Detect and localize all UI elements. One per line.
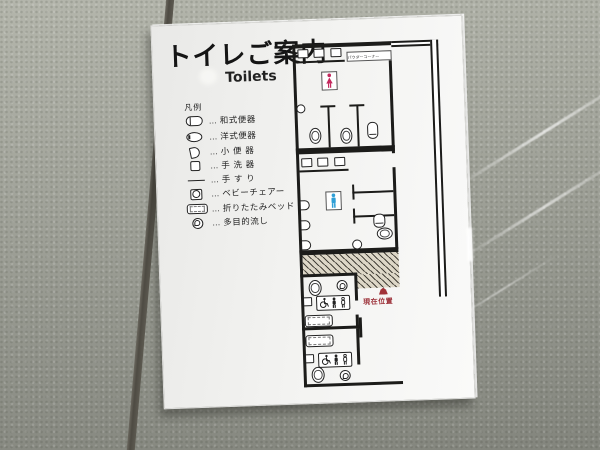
stall-partition: [327, 106, 330, 147]
folding-bed: [305, 314, 333, 327]
stall-partition: [349, 104, 364, 106]
western-toilet: [340, 128, 353, 144]
urinal: [300, 200, 310, 210]
hand-wash-basin: [317, 157, 328, 166]
stall-partition: [352, 190, 393, 193]
wall: [300, 272, 357, 277]
light-reflection: [455, 150, 600, 264]
wall: [392, 167, 398, 249]
urinal: [300, 220, 310, 230]
legend-item: … 手 洗 器: [184, 158, 255, 172]
legend-item: … 洋式便器: [183, 129, 256, 144]
hand-wash-basin-icon: [184, 161, 206, 172]
legend-label: 小 便 器: [221, 144, 255, 157]
legend-item: … ベビーチェアー: [185, 185, 285, 200]
hand-wash-basin: [334, 157, 345, 166]
hand-wash-basin: [297, 49, 308, 58]
western-toilet: [308, 280, 322, 296]
toilet-guide-sign: トイレご案内 Toilets 凡例 … 和式便器 … 洋式便器 … 小 便 器 …: [150, 15, 475, 410]
outer-wall: [430, 40, 447, 297]
wall: [392, 145, 395, 153]
hand-wash-basin: [303, 297, 312, 306]
light-reflection: [447, 69, 600, 193]
mens-room-symbol: [325, 191, 342, 211]
photo-of-toilet-guide-sign: トイレご案内 Toilets 凡例 … 和式便器 … 洋式便器 … 小 便 器 …: [0, 0, 600, 450]
stall-partition: [356, 105, 359, 146]
accessibility-badge: [316, 295, 351, 311]
baby-chair-icon: [185, 188, 207, 200]
multipurpose-sink: [340, 370, 351, 381]
hand-wash-basin: [313, 49, 324, 58]
western-toilet: [311, 367, 325, 383]
legend-label: ベビーチェアー: [222, 185, 285, 199]
legend-item: … 折りたたみベッド: [186, 200, 295, 216]
western-toilet: [377, 227, 393, 240]
legend-label: 折りたたみベッド: [223, 200, 295, 215]
squat-toilet: [367, 122, 379, 139]
counter-line: [300, 169, 349, 172]
hand-wash-basin: [330, 48, 341, 57]
sign-subtitle: Toilets: [225, 68, 277, 86]
male-icon: [328, 193, 339, 208]
legend-heading: 凡例: [184, 102, 202, 114]
wheelchair-icon: [321, 354, 331, 365]
wheelchair-icon: [319, 298, 329, 309]
edge-glint: [467, 227, 473, 261]
legend-label: 和式便器: [220, 113, 256, 126]
handrail-icon: [185, 179, 207, 181]
legend-label: 手 洗 器: [221, 158, 255, 171]
hand-wash-basin: [301, 158, 312, 167]
folding-bed-icon: [186, 204, 208, 215]
urinal: [301, 240, 311, 250]
round-basin: [296, 104, 305, 113]
squat-toilet-icon: [183, 116, 205, 127]
hatched-area: [357, 273, 399, 288]
legend-label: 洋式便器: [220, 129, 256, 142]
legend-item: … 多目的流し: [186, 215, 268, 230]
multipurpose-sink-icon: [186, 217, 208, 229]
powder-corner-label: パウダーコーナー: [346, 50, 391, 62]
legend-item: … 手 す り: [185, 172, 256, 186]
legend-label: 手 す り: [222, 172, 256, 185]
stall-partition: [353, 209, 355, 224]
toilet: [373, 213, 385, 227]
wall: [389, 60, 395, 147]
female-icon: [324, 73, 335, 88]
accessibility-badge: [318, 352, 353, 368]
legend-item: … 和式便器: [183, 113, 256, 128]
western-toilet-icon: [183, 132, 205, 143]
counter-line: [296, 60, 345, 63]
current-location-icon: [379, 287, 388, 294]
baby-icon: [332, 354, 340, 365]
stall-partition: [320, 105, 335, 107]
person-icon: [341, 354, 349, 365]
current-location-label: 現在位置: [363, 296, 393, 307]
folding-bed: [305, 334, 333, 347]
legend-item: … 小 便 器: [184, 144, 255, 158]
multipurpose-sink: [336, 280, 347, 291]
baby-icon: [330, 297, 338, 308]
floor-plan: パウダーコーナー: [292, 39, 454, 394]
legend-label: 多目的流し: [223, 215, 268, 229]
wall: [296, 145, 395, 154]
stall-partition: [352, 185, 354, 200]
western-toilet: [309, 128, 322, 144]
hand-wash-basin: [305, 354, 314, 363]
person-icon: [339, 297, 347, 308]
urinal-icon: [184, 146, 206, 158]
womens-room-symbol: [321, 71, 338, 91]
